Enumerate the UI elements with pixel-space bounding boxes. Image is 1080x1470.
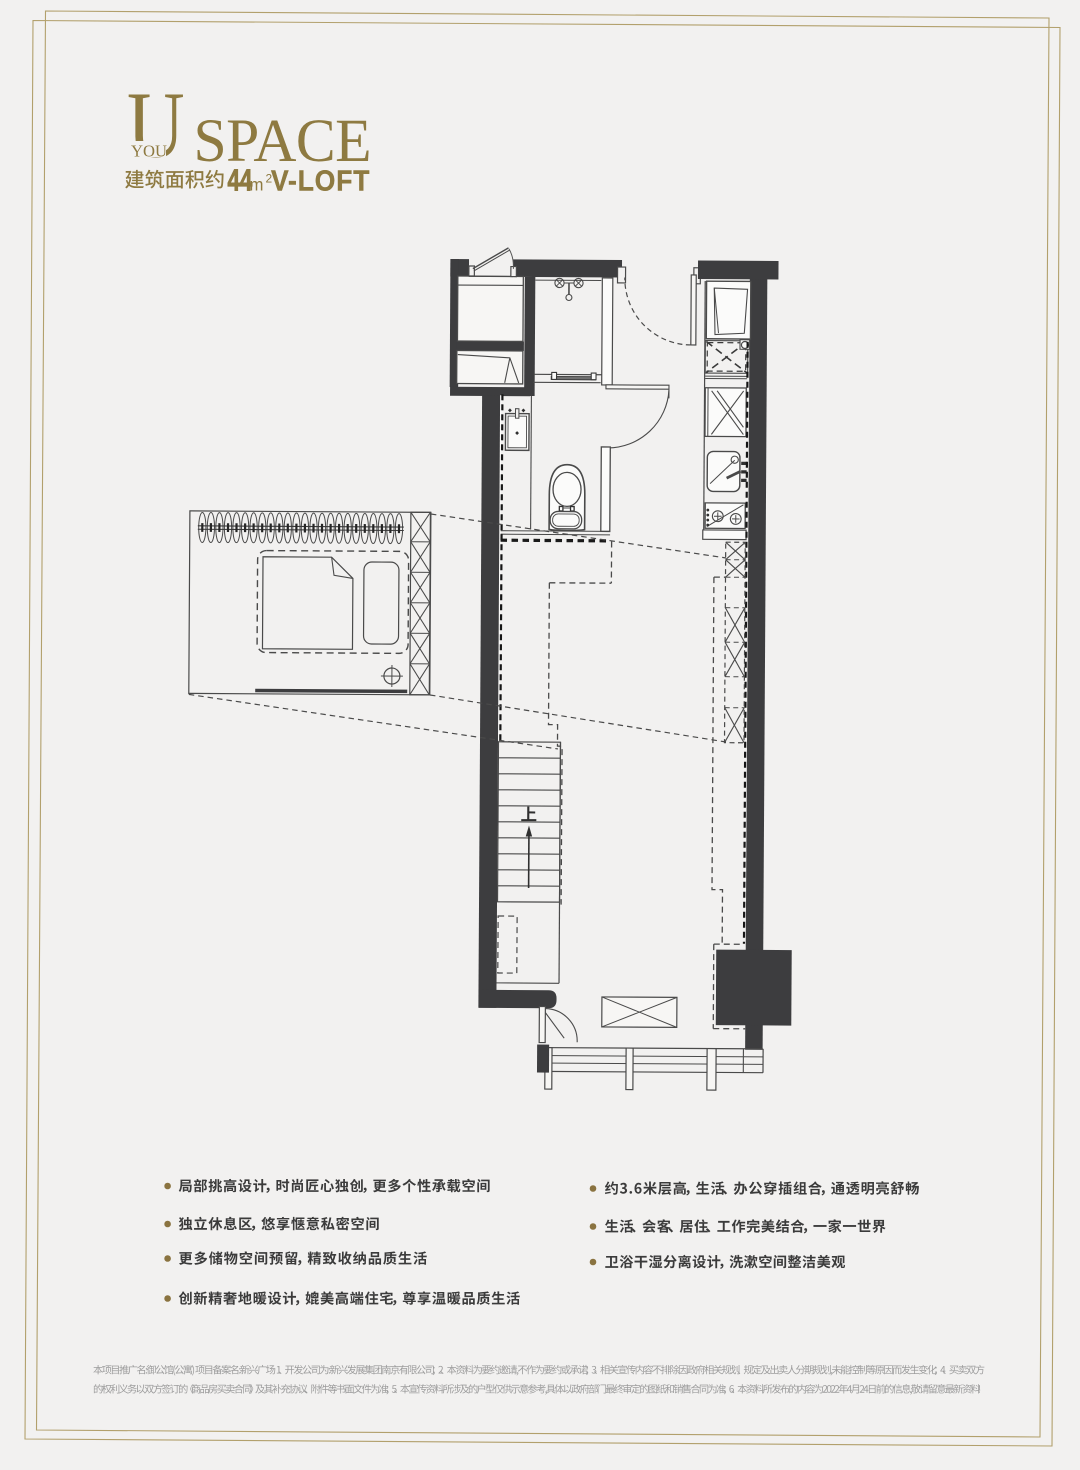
svg-text:U: U [127,73,185,178]
svg-text:m: m [250,174,264,195]
svg-text:V-LOFT: V-LOFT [271,164,370,196]
svg-text:YOU: YOU [131,142,167,161]
